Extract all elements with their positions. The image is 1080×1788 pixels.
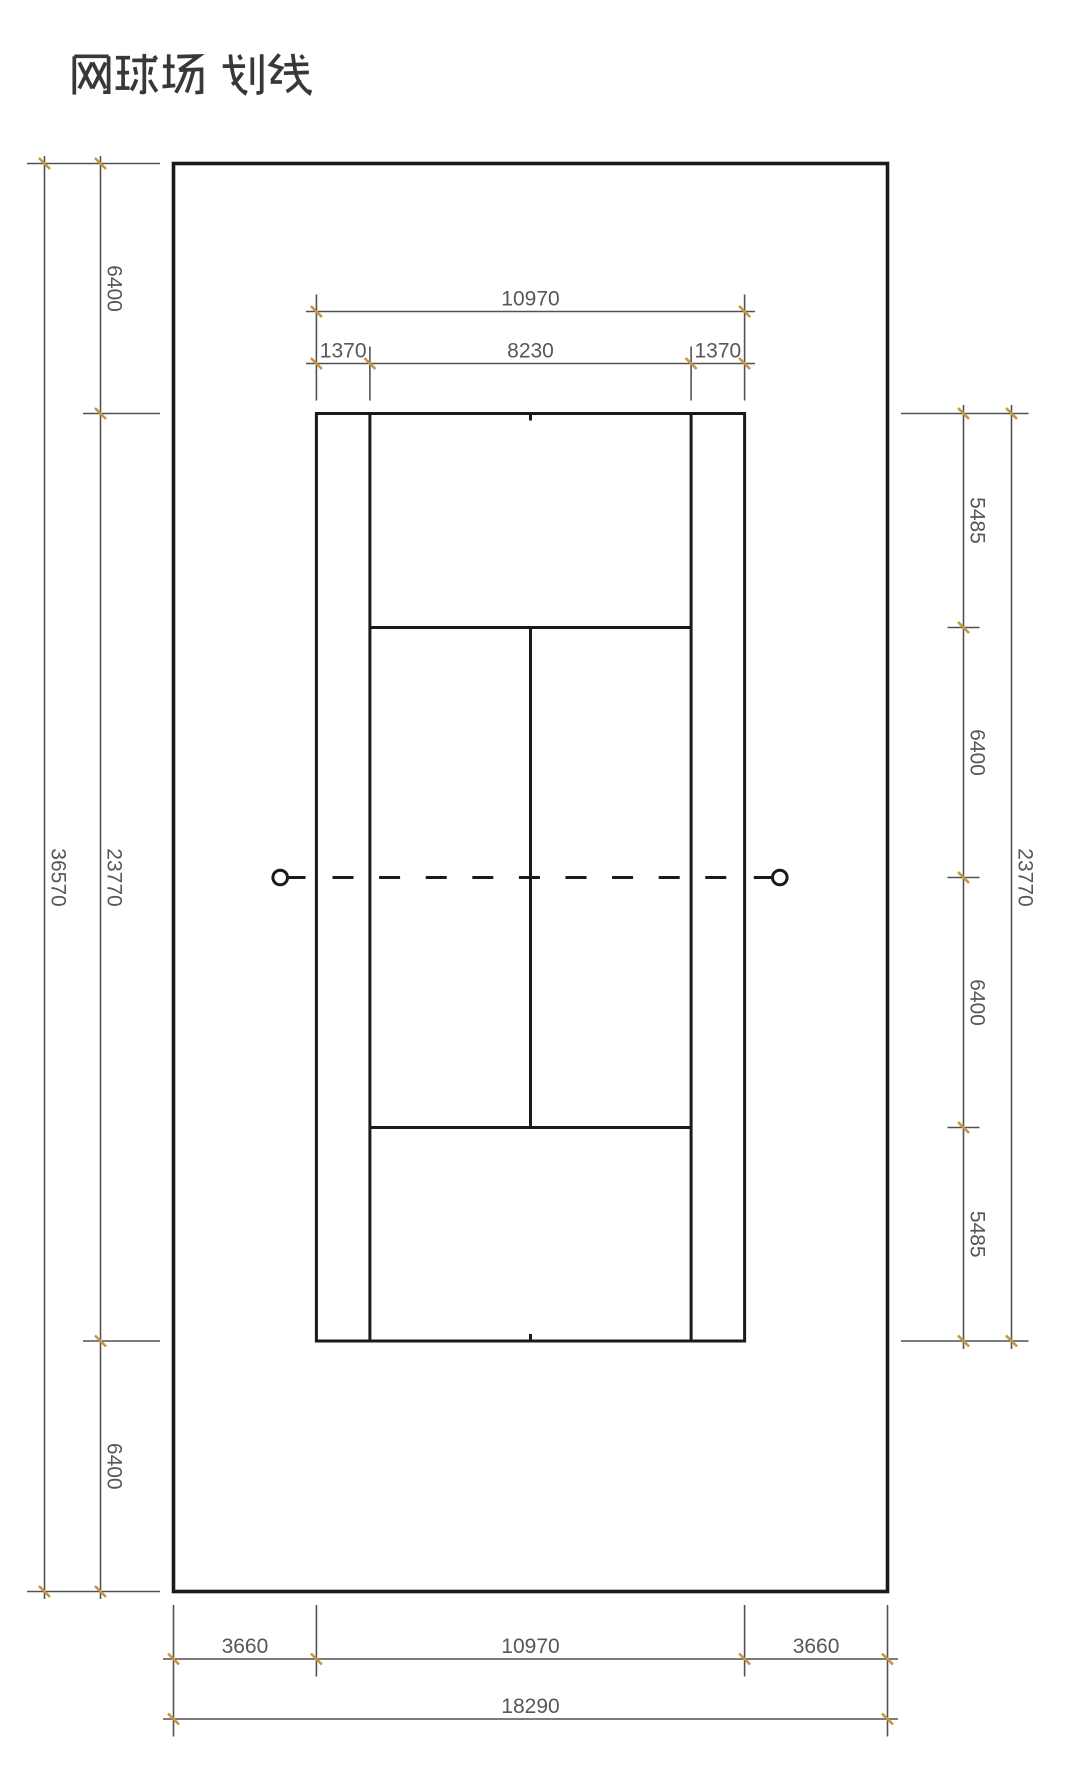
svg-text:6400: 6400 (103, 1443, 126, 1490)
svg-text:10970: 10970 (501, 287, 559, 310)
svg-text:1370: 1370 (694, 339, 741, 362)
svg-text:36570: 36570 (47, 848, 70, 906)
svg-text:3660: 3660 (793, 1635, 840, 1658)
svg-text:6400: 6400 (966, 729, 989, 776)
svg-text:18290: 18290 (501, 1695, 559, 1718)
svg-text:10970: 10970 (501, 1635, 559, 1658)
svg-text:8230: 8230 (507, 339, 554, 362)
svg-text:3660: 3660 (222, 1635, 269, 1658)
svg-text:5485: 5485 (966, 497, 989, 544)
svg-text:6400: 6400 (103, 265, 126, 312)
svg-text:6400: 6400 (966, 979, 989, 1026)
svg-text:23770: 23770 (1014, 848, 1037, 906)
svg-text:1370: 1370 (320, 339, 367, 362)
svg-text:5485: 5485 (966, 1211, 989, 1258)
svg-text:23770: 23770 (103, 848, 126, 906)
